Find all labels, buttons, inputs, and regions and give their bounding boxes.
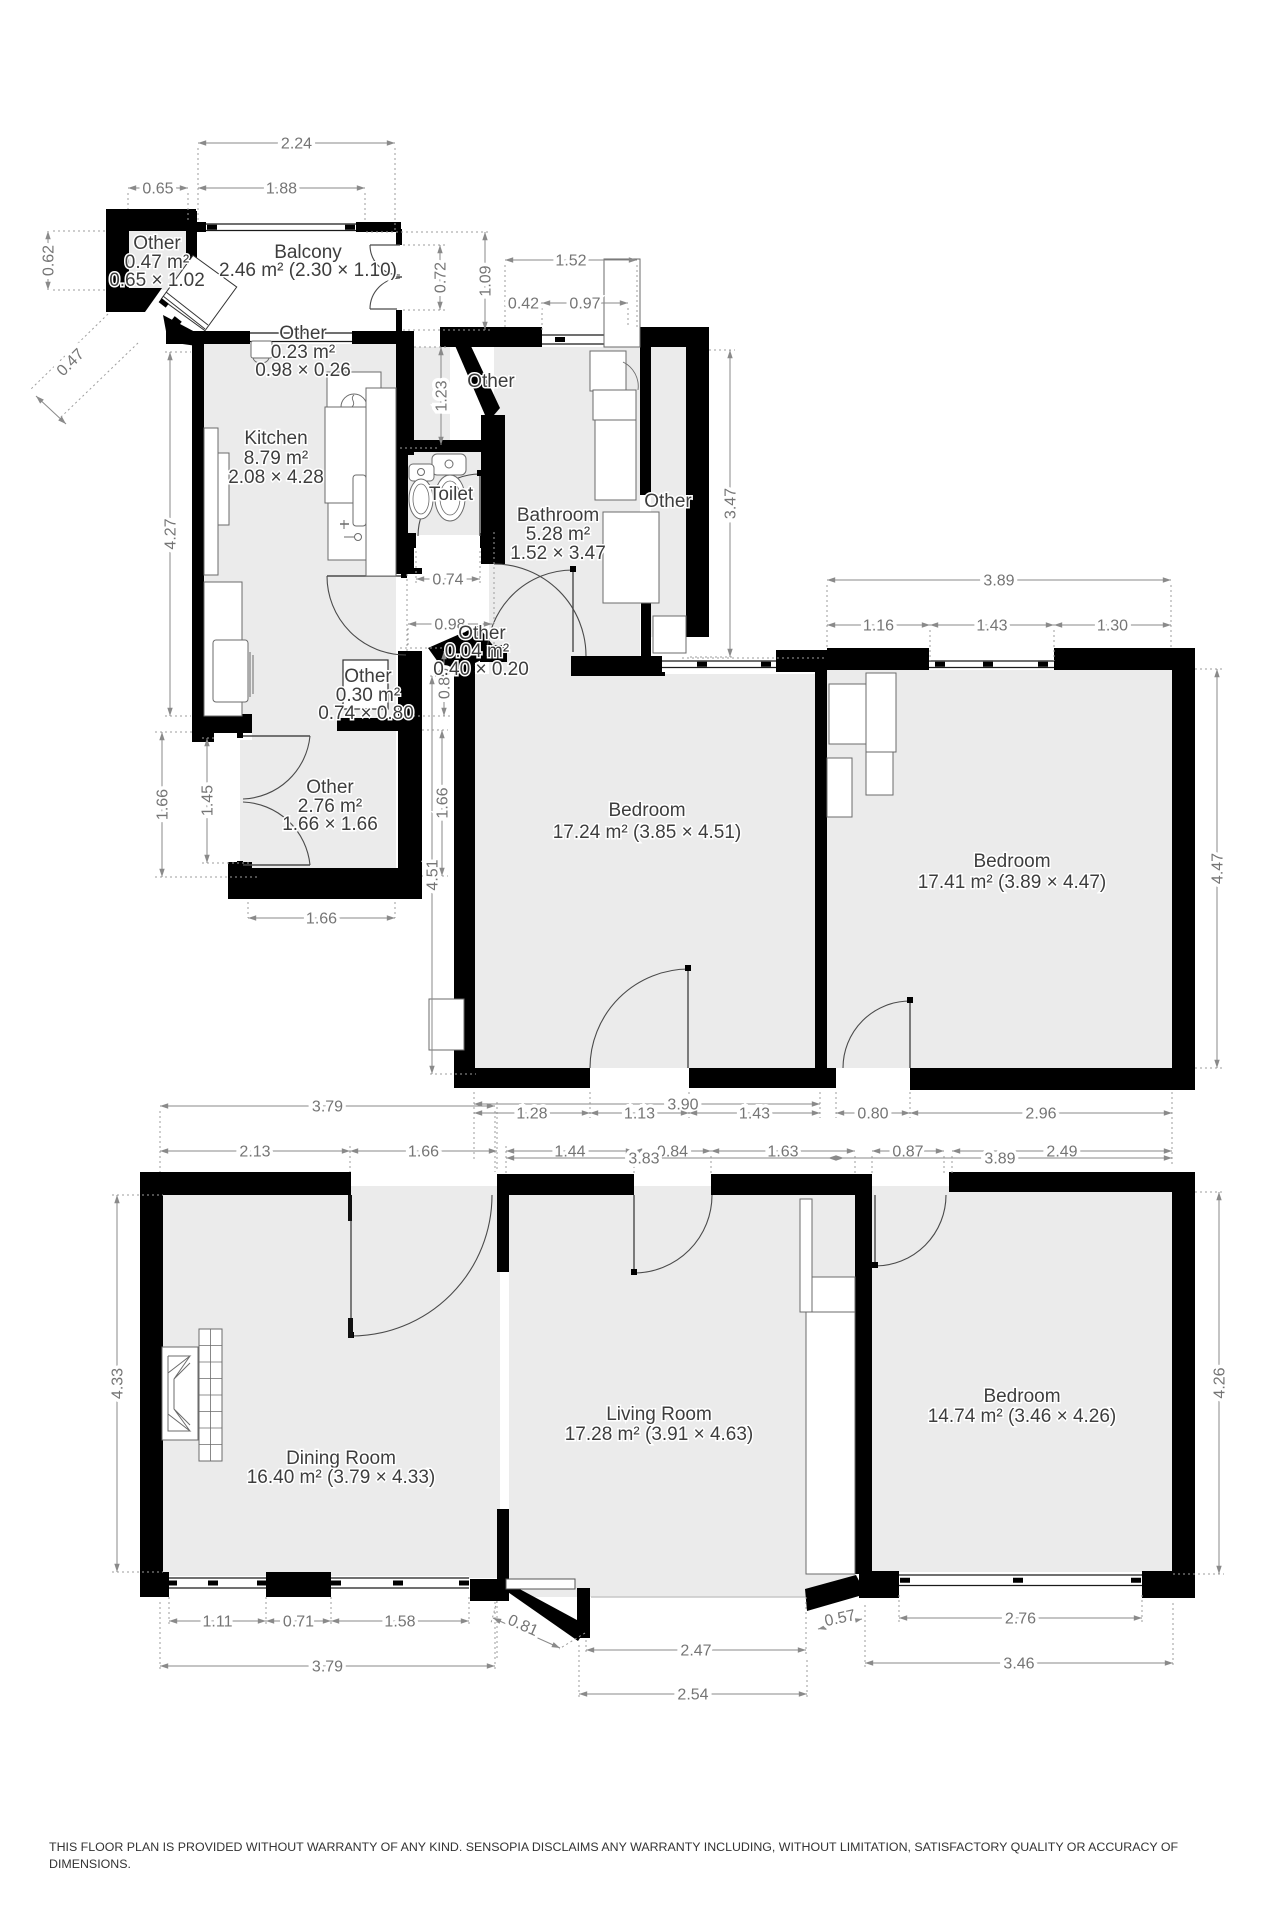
svg-text:Bathroom: Bathroom [517, 505, 599, 526]
svg-text:17.41 m² (3.89 × 4.47): 17.41 m² (3.89 × 4.47) [918, 872, 1107, 893]
svg-text:3.47: 3.47 [723, 488, 740, 519]
svg-text:1.43: 1.43 [739, 1106, 770, 1123]
svg-text:1.28: 1.28 [516, 1106, 547, 1123]
svg-text:14.74 m² (3.46 × 4.26): 14.74 m² (3.46 × 4.26) [928, 1406, 1117, 1427]
svg-text:2.13: 2.13 [239, 1144, 270, 1161]
svg-text:4.51: 4.51 [425, 859, 442, 890]
svg-text:1.11: 1.11 [203, 1614, 233, 1631]
svg-text:0.65: 0.65 [142, 181, 173, 198]
svg-text:Bedroom: Bedroom [973, 851, 1050, 872]
svg-text:1.23: 1.23 [434, 380, 451, 411]
svg-text:3.79: 3.79 [312, 1659, 343, 1676]
svg-text:3.89: 3.89 [983, 573, 1014, 590]
svg-text:0.40 × 0.20: 0.40 × 0.20 [433, 659, 529, 680]
svg-text:3.90: 3.90 [667, 1097, 698, 1114]
svg-text:Bedroom: Bedroom [983, 1386, 1060, 1407]
svg-text:Other: Other [467, 371, 515, 392]
svg-text:16.40 m² (3.79 × 4.33): 16.40 m² (3.79 × 4.33) [247, 1467, 436, 1488]
svg-text:4.26: 4.26 [1212, 1367, 1229, 1398]
svg-text:DIMENSIONS.: DIMENSIONS. [49, 1857, 131, 1871]
svg-text:1.52: 1.52 [555, 253, 586, 270]
svg-text:2.46 m² (2.30 × 1.10): 2.46 m² (2.30 × 1.10) [219, 260, 397, 281]
svg-text:Other: Other [133, 233, 181, 254]
svg-text:3.79: 3.79 [312, 1099, 343, 1116]
svg-text:0.62: 0.62 [41, 245, 58, 276]
svg-text:17.24 m² (3.85 × 4.51): 17.24 m² (3.85 × 4.51) [553, 822, 742, 843]
svg-text:0.74: 0.74 [432, 572, 463, 589]
svg-text:4.47: 4.47 [1210, 853, 1227, 884]
svg-text:Living Room: Living Room [606, 1404, 712, 1425]
svg-text:Kitchen: Kitchen [244, 428, 307, 449]
svg-text:2.96: 2.96 [1025, 1106, 1056, 1123]
svg-text:1.66 × 1.66: 1.66 × 1.66 [282, 814, 378, 835]
svg-text:0.65 × 1.02: 0.65 × 1.02 [109, 270, 205, 291]
svg-text:0.80: 0.80 [857, 1106, 888, 1123]
svg-text:2.24: 2.24 [281, 136, 312, 153]
svg-text:1.09: 1.09 [478, 265, 495, 296]
svg-text:8.79 m²: 8.79 m² [244, 448, 308, 469]
svg-text:2.08 × 4.28: 2.08 × 4.28 [228, 467, 324, 488]
svg-text:3.83: 3.83 [628, 1151, 659, 1168]
svg-text:5.28 m²: 5.28 m² [526, 524, 590, 545]
svg-text:Other: Other [644, 491, 692, 512]
svg-text:0.97: 0.97 [569, 296, 600, 313]
svg-text:0.74 × 0.80: 0.74 × 0.80 [318, 703, 414, 724]
svg-text:1.45: 1.45 [200, 785, 217, 816]
svg-text:1.88: 1.88 [266, 181, 297, 198]
svg-text:0.42: 0.42 [508, 296, 539, 313]
svg-text:2.54: 2.54 [677, 1687, 708, 1704]
svg-text:1.30: 1.30 [1097, 618, 1128, 635]
svg-text:THIS FLOOR PLAN IS PROVIDED WI: THIS FLOOR PLAN IS PROVIDED WITHOUT WARR… [49, 1840, 1179, 1854]
svg-text:17.28 m² (3.91 × 4.63): 17.28 m² (3.91 × 4.63) [565, 1424, 754, 1445]
svg-text:3.46: 3.46 [1003, 1656, 1034, 1673]
svg-text:1.58: 1.58 [384, 1614, 415, 1631]
svg-text:1.13: 1.13 [624, 1106, 655, 1123]
svg-text:4.33: 4.33 [110, 1368, 127, 1399]
svg-text:1.52 × 3.47: 1.52 × 3.47 [510, 543, 606, 564]
svg-text:3.89: 3.89 [984, 1151, 1015, 1168]
svg-text:Other: Other [306, 777, 354, 798]
svg-text:1.66: 1.66 [155, 789, 172, 820]
svg-text:2.76: 2.76 [1005, 1611, 1036, 1628]
svg-text:0.71: 0.71 [283, 1614, 314, 1631]
svg-text:Dining Room: Dining Room [286, 1448, 396, 1469]
svg-text:1.16: 1.16 [863, 618, 894, 635]
svg-text:0.72: 0.72 [433, 262, 450, 293]
svg-text:Bedroom: Bedroom [608, 800, 685, 821]
svg-text:1.43: 1.43 [976, 618, 1007, 635]
svg-text:1.66: 1.66 [306, 911, 337, 928]
svg-text:Other: Other [279, 323, 327, 344]
svg-text:0.98 × 0.26: 0.98 × 0.26 [255, 360, 351, 381]
svg-text:Toilet: Toilet [429, 484, 474, 505]
svg-text:2.47: 2.47 [680, 1643, 711, 1660]
svg-text:4.27: 4.27 [163, 518, 180, 549]
svg-text:Other: Other [344, 666, 392, 687]
svg-text:1.66: 1.66 [435, 787, 452, 818]
svg-text:1.66: 1.66 [408, 1144, 439, 1161]
